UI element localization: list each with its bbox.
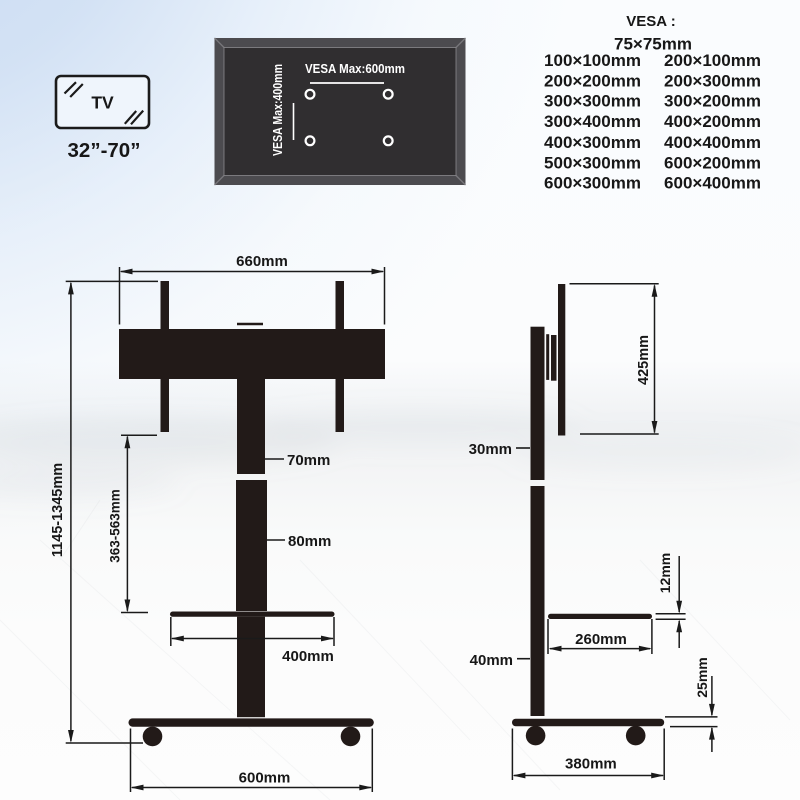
svg-text:425mm: 425mm xyxy=(636,335,652,385)
svg-text:70mm: 70mm xyxy=(287,452,330,469)
svg-text:200×100mm: 200×100mm xyxy=(664,51,761,70)
svg-text:VESA Max:400mm: VESA Max:400mm xyxy=(271,64,285,156)
svg-text:400×400mm: 400×400mm xyxy=(664,133,761,152)
svg-text:32”-70”: 32”-70” xyxy=(68,139,141,162)
svg-text:600×300mm: 600×300mm xyxy=(544,174,641,193)
svg-text:40mm: 40mm xyxy=(470,652,513,669)
svg-text:260mm: 260mm xyxy=(575,631,627,648)
svg-text:300×200mm: 300×200mm xyxy=(664,92,761,111)
svg-text:TV: TV xyxy=(91,93,114,113)
svg-text:400mm: 400mm xyxy=(282,648,334,665)
svg-text:200×300mm: 200×300mm xyxy=(664,71,761,90)
svg-text:VESA :: VESA : xyxy=(626,13,675,30)
svg-text:25mm: 25mm xyxy=(694,657,710,697)
svg-text:400×200mm: 400×200mm xyxy=(664,112,761,131)
svg-text:VESA Max:600mm: VESA Max:600mm xyxy=(305,62,405,76)
svg-text:30mm: 30mm xyxy=(469,441,512,458)
svg-text:660mm: 660mm xyxy=(236,253,288,270)
svg-text:400×300mm: 400×300mm xyxy=(544,133,641,152)
svg-text:1145-1345mm: 1145-1345mm xyxy=(50,463,66,557)
svg-text:80mm: 80mm xyxy=(288,533,331,550)
svg-text:300×400mm: 300×400mm xyxy=(544,112,641,131)
svg-text:600×200mm: 600×200mm xyxy=(664,153,761,172)
svg-text:380mm: 380mm xyxy=(565,756,617,773)
svg-text:500×300mm: 500×300mm xyxy=(544,153,641,172)
svg-text:12mm: 12mm xyxy=(657,553,673,593)
svg-text:600×400mm: 600×400mm xyxy=(664,174,761,193)
svg-text:300×300mm: 300×300mm xyxy=(544,92,641,111)
svg-text:600mm: 600mm xyxy=(239,770,291,787)
svg-text:200×200mm: 200×200mm xyxy=(544,71,641,90)
svg-text:363-563mm: 363-563mm xyxy=(108,489,123,563)
svg-text:100×100mm: 100×100mm xyxy=(544,51,641,70)
